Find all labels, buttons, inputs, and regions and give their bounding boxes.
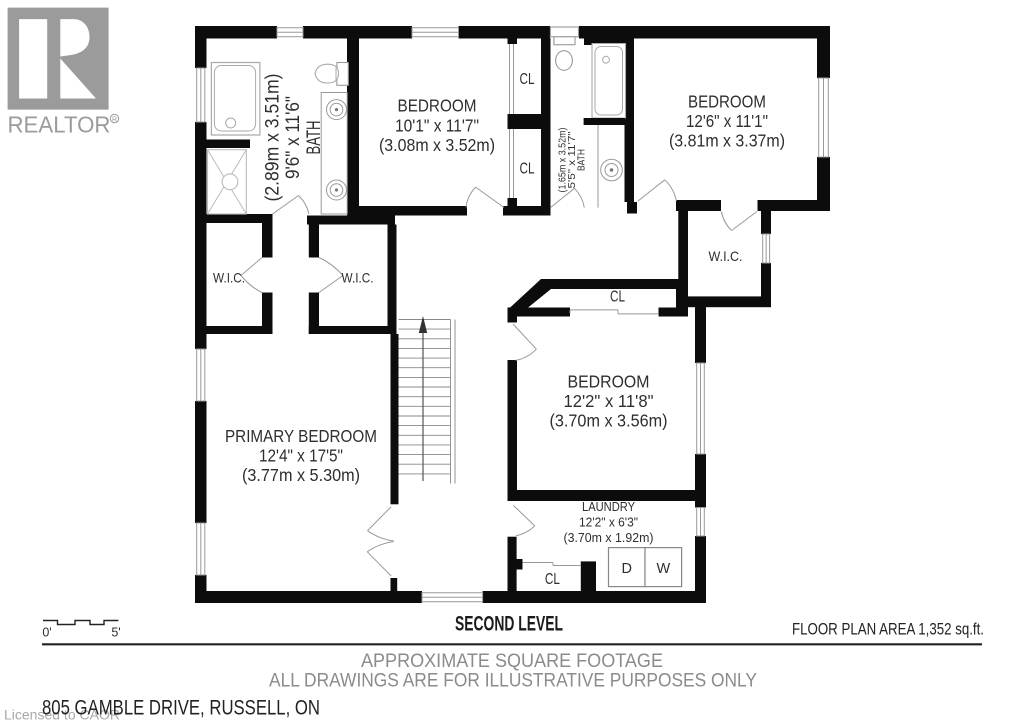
svg-text:805 GAMBLE DRIVE, RUSSELL, ON: 805 GAMBLE DRIVE, RUSSELL, ON	[42, 696, 320, 720]
svg-text:CL: CL	[610, 289, 625, 306]
svg-text:W.I.C.: W.I.C.	[342, 270, 374, 286]
svg-text:9'6" x 11'6": 9'6" x 11'6"	[282, 96, 304, 179]
svg-text:REALTOR: REALTOR	[8, 112, 111, 138]
svg-text:(3.81m x 3.37m): (3.81m x 3.37m)	[669, 131, 785, 151]
svg-text:D: D	[621, 561, 631, 577]
svg-text:CL: CL	[545, 571, 560, 588]
svg-text:10'1" x 11'7": 10'1" x 11'7"	[395, 115, 479, 135]
svg-text:(3.70m x 3.56m): (3.70m x 3.56m)	[550, 411, 668, 431]
svg-text:CL: CL	[520, 71, 535, 88]
svg-text:12'2" x 11'8": 12'2" x 11'8"	[564, 391, 654, 411]
svg-text:BEDROOM: BEDROOM	[688, 91, 766, 111]
svg-text:(1.65m x 3.52m): (1.65m x 3.52m)	[557, 128, 569, 193]
svg-text:R: R	[112, 116, 117, 123]
svg-text:CL: CL	[520, 160, 535, 177]
svg-text:W: W	[656, 561, 670, 577]
svg-text:(2.89m x 3.51m): (2.89m x 3.51m)	[261, 74, 283, 202]
svg-text:(3.08m x 3.52m): (3.08m x 3.52m)	[379, 135, 495, 155]
svg-text:(3.77m x 5.30m): (3.77m x 5.30m)	[242, 465, 360, 485]
svg-text:SECOND LEVEL: SECOND LEVEL	[455, 613, 563, 636]
svg-text:W.I.C.: W.I.C.	[213, 270, 245, 286]
svg-text:LAUNDRY: LAUNDRY	[582, 499, 635, 514]
svg-text:12'2" x 6'3": 12'2" x 6'3"	[579, 514, 638, 529]
svg-text:12'4" x 17'5": 12'4" x 17'5"	[259, 445, 343, 465]
svg-text:12'6" x 11'1": 12'6" x 11'1"	[686, 111, 768, 131]
svg-text:(3.70m x 1.92m): (3.70m x 1.92m)	[564, 530, 654, 545]
svg-text:FLOOR PLAN AREA 1,352 sq.ft.: FLOOR PLAN AREA 1,352 sq.ft.	[792, 619, 984, 638]
svg-text:BEDROOM: BEDROOM	[398, 96, 477, 116]
svg-text:BATH: BATH	[303, 121, 325, 155]
svg-text:BEDROOM: BEDROOM	[568, 371, 650, 391]
svg-text:0': 0'	[42, 625, 51, 639]
svg-text:PRIMARY BEDROOM: PRIMARY BEDROOM	[225, 426, 377, 446]
svg-text:ALL DRAWINGS ARE FOR ILLUSTRAT: ALL DRAWINGS ARE FOR ILLUSTRATIVE PURPOS…	[269, 670, 757, 692]
svg-text:W.I.C.: W.I.C.	[709, 248, 743, 264]
svg-text:5': 5'	[111, 625, 120, 639]
